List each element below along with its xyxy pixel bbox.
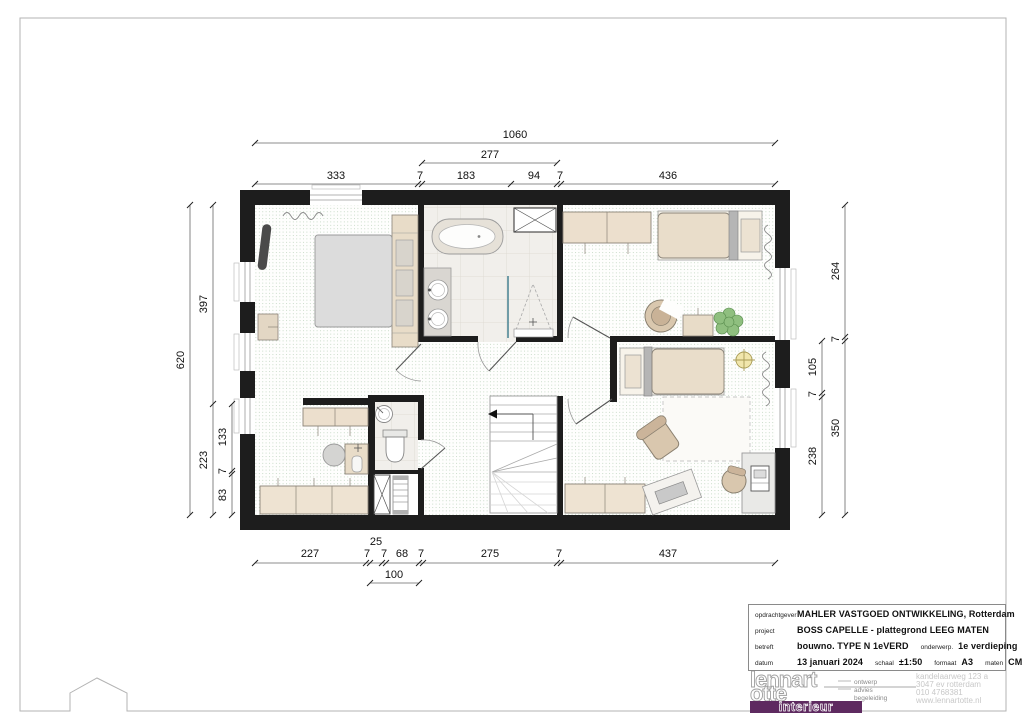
drawing-sheet: 1060 277 333 7 183 94 7 436 227 7 7 6 [0,0,1024,725]
dimensions-bottom: 227 7 7 68 7 275 7 437 25 100 [252,536,778,586]
wc-sink [376,406,393,423]
dim-label: 7 [556,548,562,560]
dim-label: 238 [807,447,819,465]
dimensions-right: 105 7 238 264 7 350 [807,202,848,518]
dim-label: 7 [830,336,842,342]
dim-label: 7 [557,170,563,182]
field-label: opdrachtgever [755,612,797,619]
service-label: ontwerp [854,679,878,686]
dim-label: 94 [528,170,540,182]
window [310,185,362,205]
dim-label: 436 [659,170,677,182]
skylight [514,208,556,232]
single-bed-1 [658,211,762,260]
field-label: schaal [875,660,894,667]
dim-label: 275 [481,548,499,560]
drain-strip [514,329,553,337]
subject-value: bouwno. TYPE N 1eVERD [797,641,909,651]
single-bed-2 [620,347,724,396]
dim-label: 620 [175,351,187,369]
dim-label: 333 [327,170,345,182]
logo-band-label: interieur [779,700,834,714]
radiator [393,476,408,514]
vanity-table [345,444,368,474]
format-value: A3 [961,657,973,667]
logo-svg: lennart otte interieur ontwerp advies be… [748,671,1006,715]
field-label: datum [755,660,797,667]
topic-value: 1e verdieping [958,641,1017,651]
dim-label: 350 [830,419,842,437]
dim-label: 25 [370,536,382,548]
title-block: opdrachtgever MAHLER VASTGOED ONTWIKKELI… [748,604,1006,671]
staircase [488,396,557,513]
title-block-row: project BOSS CAPELLE - plattegrond LEEG … [755,625,999,635]
field-label: formaat [934,660,956,667]
dim-label: 7 [807,391,819,397]
title-block-row: betreft bouwno. TYPE N 1eVERD onderwerp.… [755,641,999,651]
field-label: onderwerp. [921,644,954,651]
vanity-sinks [424,268,451,336]
title-block-row: datum 13 januari 2024 schaal ±1:50 forma… [755,657,999,667]
dim-label: 223 [198,451,210,469]
field-label: maten [985,660,1003,667]
client-name: MAHLER VASTGOED ONTWIKKELING, Rotterdam [797,609,1015,619]
date-value: 13 januari 2024 [797,657,863,667]
field-label: project [755,628,797,635]
dim-label: 7 [418,548,424,560]
dim-label: 264 [830,262,842,280]
window [775,268,796,340]
dimensions-top: 1060 277 333 7 183 94 7 436 [252,129,778,187]
dim-label: 7 [364,548,370,560]
double-bed [315,215,418,347]
field-label: betreft [755,644,797,651]
units-value: CM [1008,657,1022,667]
window [234,398,255,434]
address-line: www.lennartotte.nl [915,696,982,705]
dim-label: 133 [217,428,229,446]
project-name: BOSS CAPELLE - plattegrond LEEG MATEN [797,625,989,635]
dim-label: 100 [385,569,403,581]
window [775,388,796,448]
dim-label: 68 [396,548,408,560]
dim-label: 105 [807,358,819,376]
dim-label: 7 [217,468,229,474]
dim-label: 277 [481,149,499,161]
dim-label: 7 [381,548,387,560]
monitor [751,466,769,491]
dim-label: 227 [301,548,319,560]
duct-shaft [374,475,390,514]
task-chair [323,444,345,466]
rug [663,397,750,461]
scale-value: ±1:50 [899,657,922,667]
dim-label: 83 [217,489,229,501]
window [234,333,255,371]
dim-label: 1060 [503,129,527,141]
dim-label: 183 [457,170,475,182]
title-block-row: opdrachtgever MAHLER VASTGOED ONTWIKKELI… [755,609,999,619]
dimensions-left: 620 397 223 133 7 83 [175,202,235,518]
dim-label: 437 [659,548,677,560]
dim-label: 7 [417,170,423,182]
company-logo: lennart otte interieur ontwerp advies be… [748,671,1006,715]
service-label: begeleiding [854,695,888,702]
service-label: advies [854,687,874,694]
window [234,262,255,302]
dim-label: 397 [198,295,210,313]
bathtub [432,219,503,254]
